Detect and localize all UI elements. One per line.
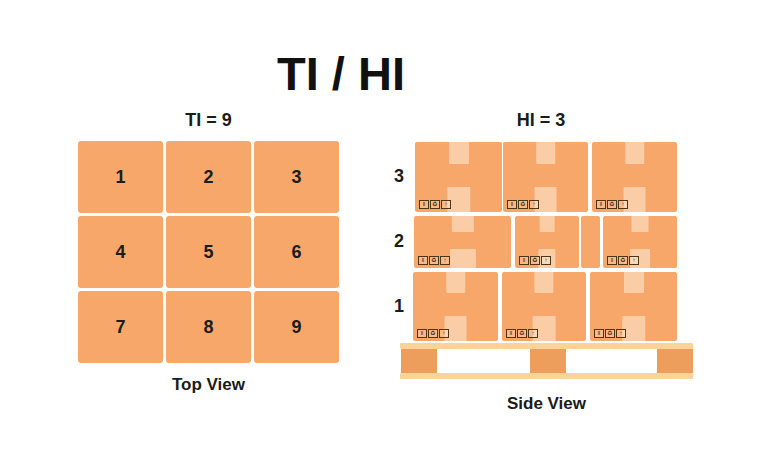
this-way-up-icon: ↑ (541, 256, 551, 265)
tape-stripe (625, 142, 645, 164)
shipping-labels: ‖♻↑ (607, 256, 639, 265)
this-way-up-icon: ↑ (616, 329, 626, 338)
fragile-icon: ‖ (418, 256, 428, 265)
carton-box: ‖♻↑ (590, 272, 677, 341)
carton-box: ‖♻↑ (502, 272, 586, 341)
recycle-icon: ♻ (517, 329, 527, 338)
shipping-labels: ‖♻↑ (594, 329, 626, 338)
recycle-icon: ♻ (607, 200, 617, 209)
carton-box: ‖♻↑ (415, 142, 502, 212)
tape-stripe (451, 216, 473, 232)
recycle-icon: ♻ (430, 200, 440, 209)
fragile-icon: ‖ (596, 200, 606, 209)
recycle-icon: ♻ (605, 329, 615, 338)
recycle-icon: ♻ (428, 329, 438, 338)
shipping-labels: ‖♻↑ (506, 329, 538, 338)
carton-box: ‖♻↑ (515, 216, 579, 268)
this-way-up-icon: ↑ (439, 329, 449, 338)
pallet-block-2 (530, 349, 566, 373)
tape-stripe (536, 142, 556, 164)
tape-stripe (446, 272, 466, 293)
shipping-labels: ‖♻↑ (596, 200, 628, 209)
shipping-labels: ‖♻↑ (417, 329, 449, 338)
carton-box: ‖♻↑ (603, 216, 677, 268)
pallet-block-3 (657, 349, 693, 373)
fragile-icon: ‖ (419, 200, 429, 209)
this-way-up-icon: ↑ (529, 200, 539, 209)
recycle-icon: ♻ (618, 256, 628, 265)
this-way-up-icon: ↑ (629, 256, 639, 265)
shipping-labels: ‖♻↑ (418, 256, 450, 265)
tihi-infographic: TI / HI TI = 9 HI = 3 123456789 Top View… (0, 0, 781, 469)
carton-box: ‖♻↑ (413, 272, 498, 341)
tape-stripe (540, 216, 555, 232)
side-view-caption: Side View (400, 394, 693, 414)
carton-box: ‖♻↑ (414, 216, 511, 268)
shipping-labels: ‖♻↑ (419, 200, 451, 209)
recycle-icon: ♻ (530, 256, 540, 265)
pallet-bottom-board (400, 373, 693, 379)
tape-stripe (449, 142, 469, 164)
this-way-up-icon: ↑ (618, 200, 628, 209)
carton-box: ‖♻↑ (592, 142, 677, 212)
fragile-icon: ‖ (594, 329, 604, 338)
recycle-icon: ♻ (518, 200, 528, 209)
fragile-icon: ‖ (607, 256, 617, 265)
shipping-labels: ‖♻↑ (507, 200, 539, 209)
this-way-up-icon: ↑ (440, 256, 450, 265)
shipping-labels: ‖♻↑ (519, 256, 551, 265)
tape-stripe (449, 249, 475, 268)
recycle-icon: ♻ (429, 256, 439, 265)
tape-stripe (624, 272, 644, 293)
layer-label-1: 1 (388, 296, 410, 317)
fragile-icon: ‖ (506, 329, 516, 338)
fragile-icon: ‖ (519, 256, 529, 265)
this-way-up-icon: ↑ (528, 329, 538, 338)
fragile-icon: ‖ (417, 329, 427, 338)
fragile-icon: ‖ (507, 200, 517, 209)
this-way-up-icon: ↑ (441, 200, 451, 209)
tape-stripe (631, 216, 648, 232)
layer-label-3: 3 (388, 166, 410, 187)
carton-box (581, 216, 600, 268)
tape-stripe (534, 272, 553, 293)
layer-label-2: 2 (388, 231, 410, 252)
pallet-block-1 (401, 349, 437, 373)
carton-box: ‖♻↑ (503, 142, 588, 212)
